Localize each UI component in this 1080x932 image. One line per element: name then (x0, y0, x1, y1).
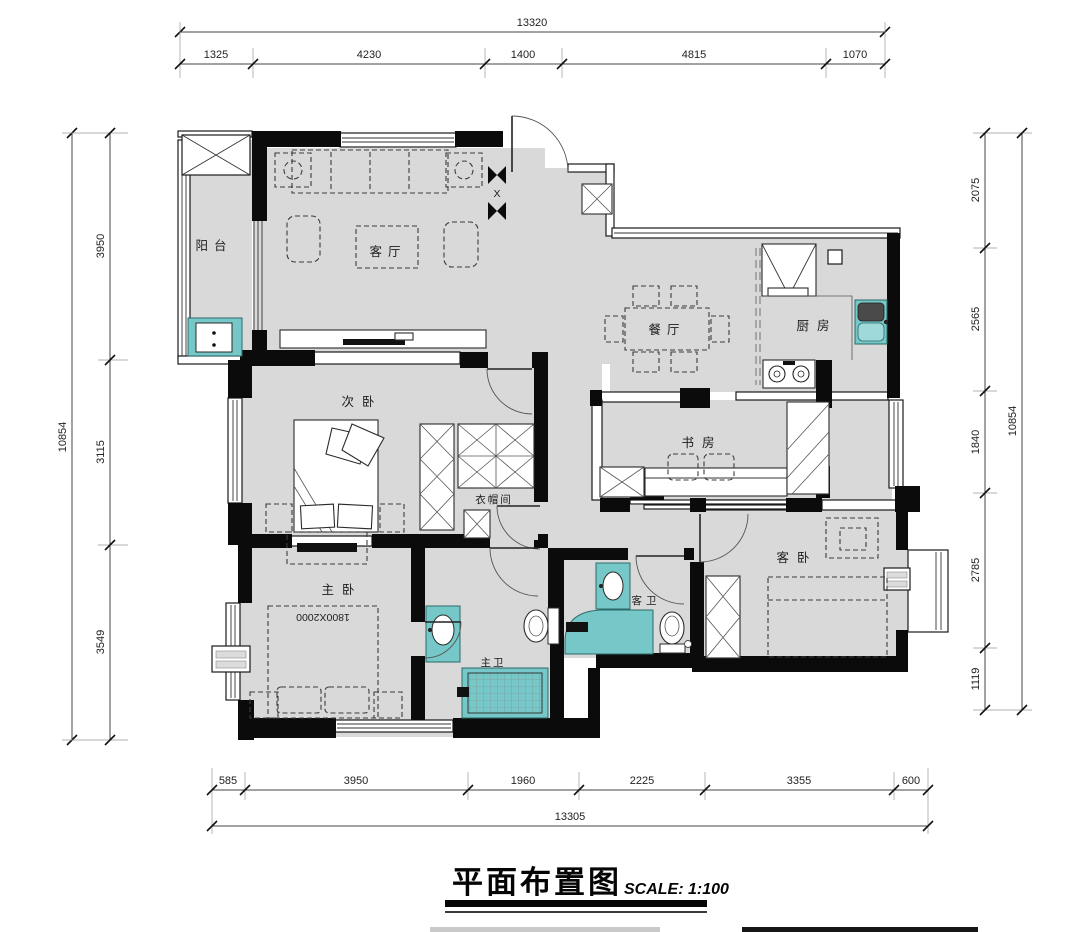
room-label-balcony: 阳台 (195, 238, 232, 253)
dimension-top: 13320 1325 4230 1400 4815 1070 (175, 17, 890, 78)
dimension-bottom: 585 3950 1960 2225 3355 600 13305 (207, 768, 933, 834)
drawing-scale: SCALE: 1:100 (624, 881, 729, 898)
balcony-sink (188, 318, 242, 356)
dim-top-total: 13320 (517, 17, 548, 29)
bottom-edge-artifact-gray (430, 927, 660, 932)
kitchen-sink (855, 300, 888, 344)
wardrobe-guest (706, 576, 740, 658)
guest-shower (565, 610, 653, 654)
drawing-title: 平面布置图 (452, 865, 622, 900)
svg-text:1840: 1840 (970, 430, 982, 454)
room-label-guest-bath: 客卫 (632, 594, 661, 607)
svg-text:4815: 4815 (682, 49, 706, 61)
svg-text:2565: 2565 (970, 307, 982, 331)
svg-text:1400: 1400 (511, 49, 535, 61)
column-marker-label: X (493, 188, 500, 200)
wardrobe-second-bedroom (420, 424, 454, 530)
hallway-cabinet (600, 467, 644, 497)
svg-text:1325: 1325 (204, 49, 228, 61)
svg-text:600: 600 (902, 775, 920, 787)
dimension-left: 10854 3950 3115 3549 (57, 128, 128, 745)
dimension-right: 2075 2565 1840 2785 1119 10854 (970, 128, 1032, 715)
floor-plan-drawing: X (0, 0, 1080, 932)
room-label-living: 客厅 (369, 244, 406, 259)
svg-text:585: 585 (219, 775, 237, 787)
room-label-dining: 餐厅 (648, 322, 685, 337)
room-label-master-bath: 主卫 (481, 657, 506, 669)
title-block: 平面布置图 SCALE: 1:100 (445, 865, 729, 913)
svg-text:1119: 1119 (970, 668, 982, 691)
svg-text:3950: 3950 (95, 234, 107, 258)
room-label-guest-bedroom: 客卧 (776, 550, 817, 565)
svg-text:4230: 4230 (357, 49, 381, 61)
guest-bath-sink (596, 563, 630, 609)
master-bathtub (457, 668, 548, 718)
study-closet (787, 402, 829, 494)
foyer-cabinet (582, 184, 612, 214)
title-underline-thin (445, 911, 707, 913)
room-label-study: 书房 (681, 435, 722, 450)
floor-plan-page: X (0, 0, 1080, 932)
svg-text:3115: 3115 (95, 440, 107, 464)
title-underline-thick (445, 900, 707, 907)
room-label-second-bedroom: 次卧 (341, 395, 382, 409)
svg-text:3549: 3549 (95, 630, 107, 654)
tv-console-living (280, 330, 486, 348)
wardrobe-cloakroom (458, 424, 534, 488)
bottom-edge-artifact-black (742, 927, 978, 932)
svg-text:2075: 2075 (970, 178, 982, 202)
bed-size-label: 1800X2000 (296, 611, 350, 623)
stove (763, 360, 815, 388)
svg-text:2785: 2785 (970, 558, 982, 582)
master-toilet (524, 608, 559, 644)
fridge (762, 244, 816, 296)
room-label-master: 主卧 (321, 583, 362, 597)
room-label-kitchen: 厨房 (796, 318, 837, 333)
svg-text:2225: 2225 (630, 775, 654, 787)
dim-right-total: 10854 (1007, 406, 1019, 437)
room-label-cloakroom: 衣帽间 (475, 493, 513, 506)
svg-text:1070: 1070 (843, 49, 867, 61)
dim-left-total: 10854 (57, 422, 69, 453)
cabinet-cloakroom-small (464, 510, 490, 538)
svg-text:1960: 1960 (511, 775, 535, 787)
svg-text:3355: 3355 (787, 775, 811, 787)
svg-text:3950: 3950 (344, 775, 368, 787)
dim-bottom-total: 13305 (555, 811, 586, 823)
